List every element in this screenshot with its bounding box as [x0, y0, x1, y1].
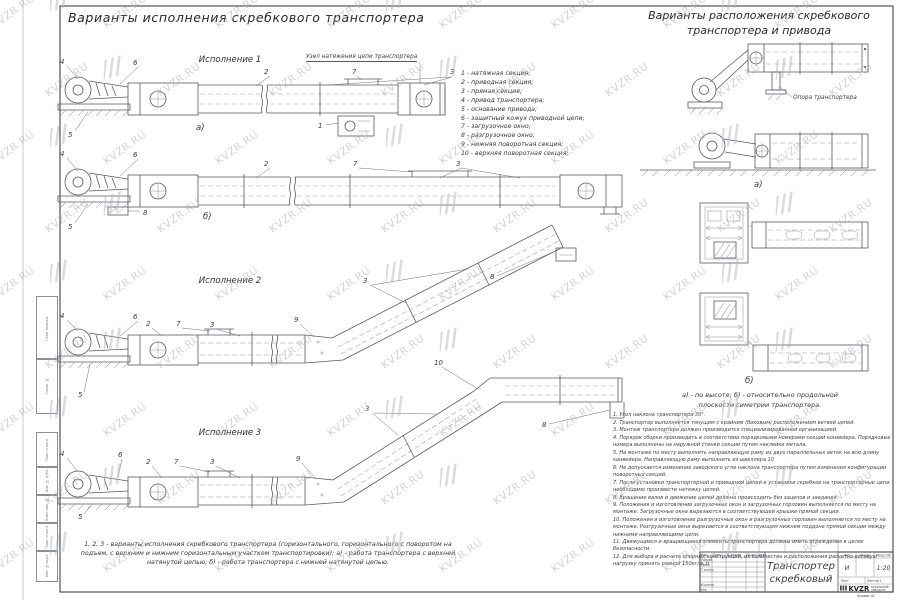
- drawing-sheet: 4 6 2 7 3 5 1 а): [0, 0, 900, 600]
- callout-1: 1: [318, 122, 322, 130]
- right-title: Варианты расположения скребкового трансп…: [625, 9, 893, 39]
- placement-plan2-drawing: б): [700, 293, 868, 386]
- callout-6: 6: [133, 313, 138, 321]
- callout-2: 2: [264, 160, 269, 168]
- callout-5: 5: [78, 391, 83, 399]
- note: 11. Движущиеся и вращающиеся элементы тр…: [613, 539, 891, 553]
- legend-item: 9 - нижняя поворотная секция;: [461, 141, 585, 150]
- legend-item: 8 - разгрузочное окно;: [461, 132, 585, 141]
- callout-7: 7: [174, 458, 179, 466]
- callout-8: 8: [490, 273, 495, 281]
- kvzr-logo: KVZR: [849, 585, 870, 593]
- exec3-drawing: 4 6 2 7 3 9 3 10 8 5: [58, 359, 624, 521]
- callout-4: 4: [60, 58, 64, 66]
- notes-block: 1. Угол наклона транспортера 30°. 2. Тра…: [613, 412, 891, 569]
- legend-item: 5 - основание привода;: [461, 106, 585, 115]
- note: 6. Не допускается изменение заводского у…: [613, 465, 891, 479]
- callout-5: 5: [68, 131, 73, 139]
- legend-list: 1 - натяжная секция; 2 - приводная секци…: [461, 70, 585, 159]
- note: 2. Транспортер выполняется тянущим с кра…: [613, 420, 891, 427]
- callout-3: 3: [363, 277, 367, 285]
- note: 10. Положения и изготовление разгрузочны…: [613, 517, 891, 539]
- view-a-label: а): [196, 123, 205, 133]
- tension-node-label: Узел натяжения цепи транспортера: [306, 54, 417, 62]
- legend-item: 7 - загрузочное окно;: [461, 123, 585, 132]
- callout-8: 8: [143, 209, 148, 217]
- callout-3: 3: [450, 68, 454, 76]
- note: 12. Для выбора и расчета опорных констру…: [613, 554, 891, 568]
- stamp-sheet-label: Лист: [840, 579, 849, 583]
- callout-8: 8: [542, 421, 547, 429]
- doc-title-line2: скребковый: [770, 573, 833, 585]
- callout-2: 2: [146, 320, 151, 328]
- view-b-label: б): [203, 212, 212, 222]
- callout-5: 5: [78, 513, 83, 521]
- view-b-label: б): [745, 376, 754, 386]
- legend-item: 10 - верхняя поворотная секция;: [461, 150, 585, 159]
- placement-low-drawing: а): [640, 132, 876, 190]
- callout-2: 2: [264, 68, 269, 76]
- stamp-row-utv: Утв.: [701, 588, 708, 592]
- legend-item: 2 - приводная секция;: [461, 79, 585, 88]
- callout-10: 10: [434, 359, 443, 367]
- note: 7. После установки транспортерной и прив…: [613, 480, 891, 494]
- legend-item: 3 - прямая секция;: [461, 88, 585, 97]
- note: 4. Порядок сборки производить в соответс…: [613, 435, 891, 449]
- exec3-label: Исполнение 3: [160, 428, 300, 438]
- legend-item: 6 - защитный кожух приводной цепи;: [461, 115, 585, 124]
- callout-9: 9: [296, 455, 301, 463]
- callout-5: 5: [68, 223, 73, 231]
- callout-6: 6: [133, 151, 138, 159]
- note: 9. Положения и изготовление загрузочных …: [613, 502, 891, 516]
- right-caption: а) - по высоте; б) - относительно продол…: [635, 391, 885, 411]
- placement-plan1-drawing: [700, 203, 868, 263]
- placement-high-drawing: [688, 42, 868, 114]
- bottom-caption: 1, 2, 3 - варианты исполнения скребковог…: [78, 540, 458, 567]
- callout-3: 3: [365, 405, 369, 413]
- callout-3: 3: [210, 321, 214, 329]
- exec1-label: Исполнение 1: [160, 55, 300, 65]
- callout-3: 3: [210, 458, 214, 466]
- callout-7: 7: [352, 68, 357, 76]
- callout-4: 4: [60, 150, 64, 158]
- note: 5. На монтаже по месту выполнить направл…: [613, 450, 891, 464]
- legend-item: 4 - привод транспортера;: [461, 97, 585, 106]
- legend-item: 1 - натяжная секция;: [461, 70, 585, 79]
- stamp-row-nkontr: Н.контр.: [701, 583, 715, 587]
- callout-9: 9: [294, 316, 299, 324]
- left-title: Варианты исполнения скребкового транспор…: [68, 10, 425, 25]
- exec2-drawing: 4 6 2 7 3 9 3 8 5: [58, 225, 576, 399]
- support-label: Опора транспортера: [793, 95, 857, 101]
- callout-4: 4: [60, 450, 64, 458]
- exec1-view-a-drawing: 4 6 2 7 3 5 1 а): [58, 58, 454, 139]
- callout-7: 7: [353, 160, 358, 168]
- callout-6: 6: [133, 59, 138, 67]
- callout-3: 3: [456, 160, 460, 168]
- stamp-sheets-label: Листов 1: [866, 579, 882, 583]
- callout-2: 2: [146, 458, 151, 466]
- callout-4: 4: [60, 312, 64, 320]
- note: 3. Монтаж транспортера должен производит…: [613, 427, 891, 434]
- view-a-label: а): [754, 180, 763, 190]
- format-label: Формат А1: [857, 594, 875, 598]
- note: 1. Угол наклона транспортера 30°.: [613, 412, 891, 419]
- callout-7: 7: [176, 320, 181, 328]
- callout-6: 6: [118, 451, 123, 459]
- exec1-view-b-drawing: 4 6 2 7 3 5 8 б): [58, 150, 622, 231]
- note: 8. Вращение валов и движение цепей должн…: [613, 495, 891, 502]
- logo-subtext-2: ЗАВОД.РФ: [871, 588, 886, 592]
- exec2-label: Исполнение 2: [160, 276, 300, 286]
